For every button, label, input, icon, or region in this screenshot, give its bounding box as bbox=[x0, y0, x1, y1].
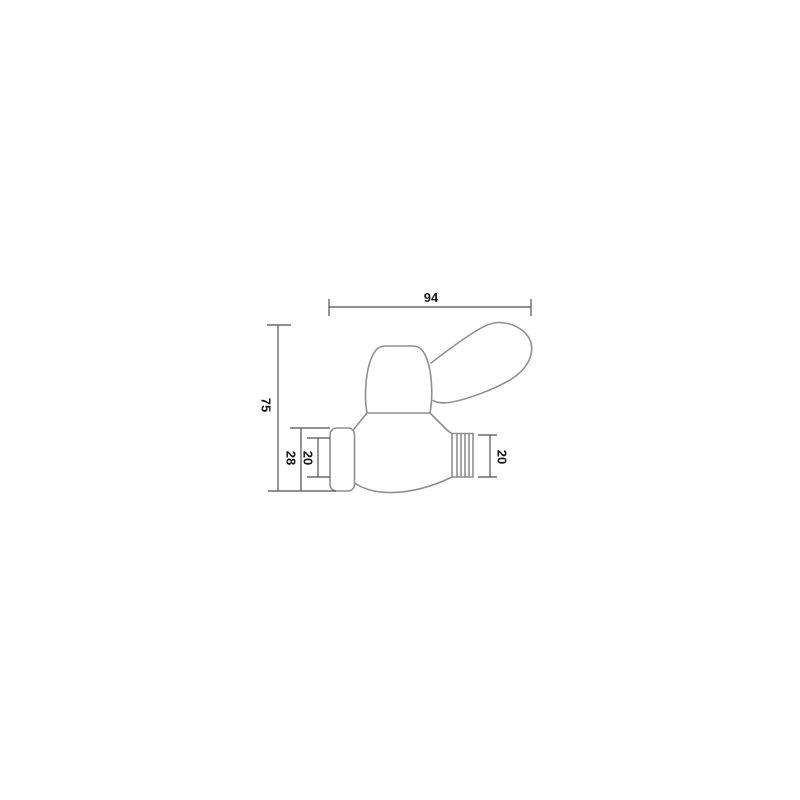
dimension-overall-height: 75 bbox=[259, 325, 337, 491]
handle-knob-outline bbox=[366, 346, 432, 413]
dimension-overall-width: 94 bbox=[329, 290, 531, 316]
dim-94-label: 94 bbox=[424, 290, 439, 305]
technical-drawing-page: 94 75 28 20 20 bbox=[0, 0, 800, 800]
body-bottom-outline bbox=[355, 477, 474, 493]
dimension-outlet-thread: 20 bbox=[478, 435, 510, 477]
dimension-inlet-inner: 20 bbox=[301, 438, 331, 477]
handle-lever-outline bbox=[431, 323, 532, 403]
dim-20-left-label: 20 bbox=[301, 451, 316, 465]
valve-technical-drawing: 94 75 28 20 20 bbox=[0, 0, 800, 800]
inlet-nut-outline bbox=[330, 428, 355, 491]
outlet-threads bbox=[452, 434, 473, 478]
body-top-outline bbox=[430, 413, 473, 434]
dim-20-right-label: 20 bbox=[495, 450, 510, 464]
dim-28-label: 28 bbox=[284, 451, 299, 465]
valve-outline bbox=[330, 323, 532, 493]
dim-75-label: 75 bbox=[259, 398, 274, 412]
neck-left-outline bbox=[354, 413, 367, 429]
